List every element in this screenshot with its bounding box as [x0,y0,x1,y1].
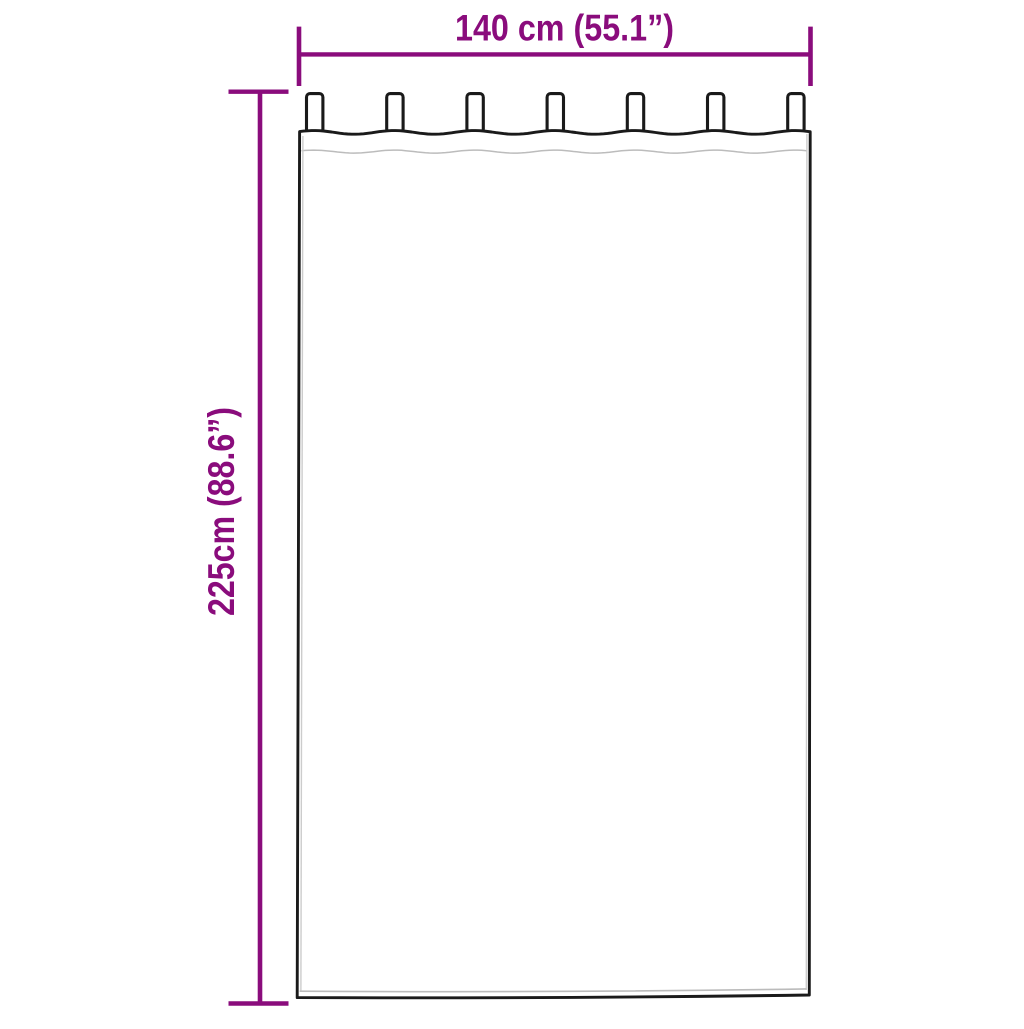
svg-text:225cm (88.6”): 225cm (88.6”) [201,407,242,616]
svg-text:140 cm (55.1”): 140 cm (55.1”) [455,8,674,49]
